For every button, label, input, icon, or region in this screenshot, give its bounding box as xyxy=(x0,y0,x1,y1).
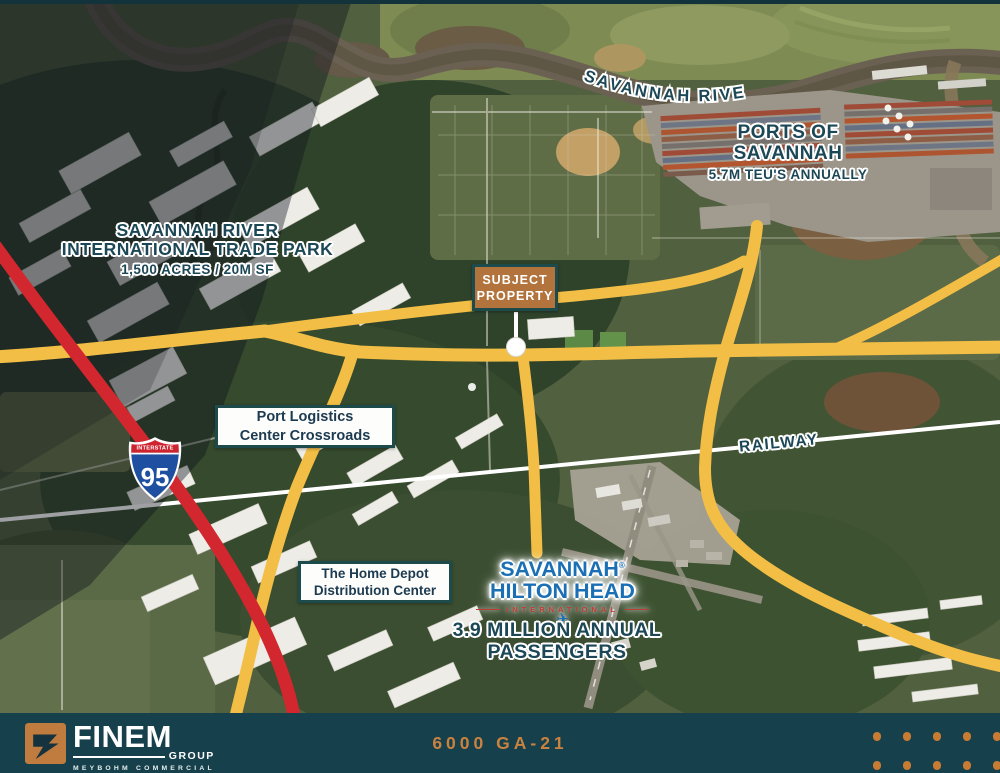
interstate-text: INTERSTATE xyxy=(136,445,173,451)
logo-rule-right xyxy=(625,609,649,611)
airport-stat-line1: 3.9 MILLION ANNUAL xyxy=(432,620,682,642)
trade-park-subtitle: 1,500 ACRES / 20M SF xyxy=(50,263,345,278)
ports-line2: SAVANNAH xyxy=(693,144,883,165)
home-depot-line2: Distribution Center xyxy=(301,582,449,599)
airport-stat-line2: PASSENGERS xyxy=(432,642,682,664)
interstate-95-shield-icon: INTERSTATE 95 xyxy=(127,433,183,505)
subject-line2: PROPERTY xyxy=(475,288,555,304)
airport-logo-line1: SAVANNAH® xyxy=(455,559,670,581)
dot-pattern xyxy=(862,722,1000,773)
port-logistics-line2: Center Crossroads xyxy=(218,427,392,446)
ports-subtitle: 5.7M TEU'S ANNUALLY xyxy=(693,168,883,183)
trade-park-line2: INTERNATIONAL TRADE PARK xyxy=(50,240,345,259)
airport-stat-label: 3.9 MILLION ANNUAL PASSENGERS xyxy=(432,620,682,664)
port-logistics-callout: Port Logistics Center Crossroads xyxy=(215,405,395,448)
subject-line1: SUBJECT xyxy=(475,272,555,288)
marketing-map-page: SAVANNAH RIVER PORTS OF SAVANNAH 5.7M TE… xyxy=(0,0,1000,773)
port-logistics-line1: Port Logistics xyxy=(218,408,392,427)
footer-bar: FINEM GROUP MEYBOHM COMMERCIAL 6000 GA-2… xyxy=(0,713,1000,773)
airport-logo: SAVANNAH® HILTON HEAD INTERNATIONAL ✈ xyxy=(455,559,670,627)
airport-logo-line2: HILTON HEAD xyxy=(455,581,670,603)
airport-name: SAVANNAH xyxy=(500,557,619,581)
ports-line1: PORTS OF xyxy=(693,123,883,144)
subject-property-callout: SUBJECT PROPERTY xyxy=(472,264,558,311)
interstate-number: 95 xyxy=(141,464,170,492)
trade-park-line1: SAVANNAH RIVER xyxy=(50,221,345,240)
trade-park-label: SAVANNAH RIVER INTERNATIONAL TRADE PARK … xyxy=(50,221,345,277)
property-address: 6000 GA-21 xyxy=(0,713,1000,773)
ports-of-savannah-label: PORTS OF SAVANNAH 5.7M TEU'S ANNUALLY xyxy=(693,123,883,183)
logo-rule-left xyxy=(476,609,500,611)
home-depot-line1: The Home Depot xyxy=(301,565,449,582)
top-border-strip xyxy=(0,0,1000,4)
registered-mark: ® xyxy=(619,561,625,570)
home-depot-callout: The Home Depot Distribution Center xyxy=(298,561,452,603)
